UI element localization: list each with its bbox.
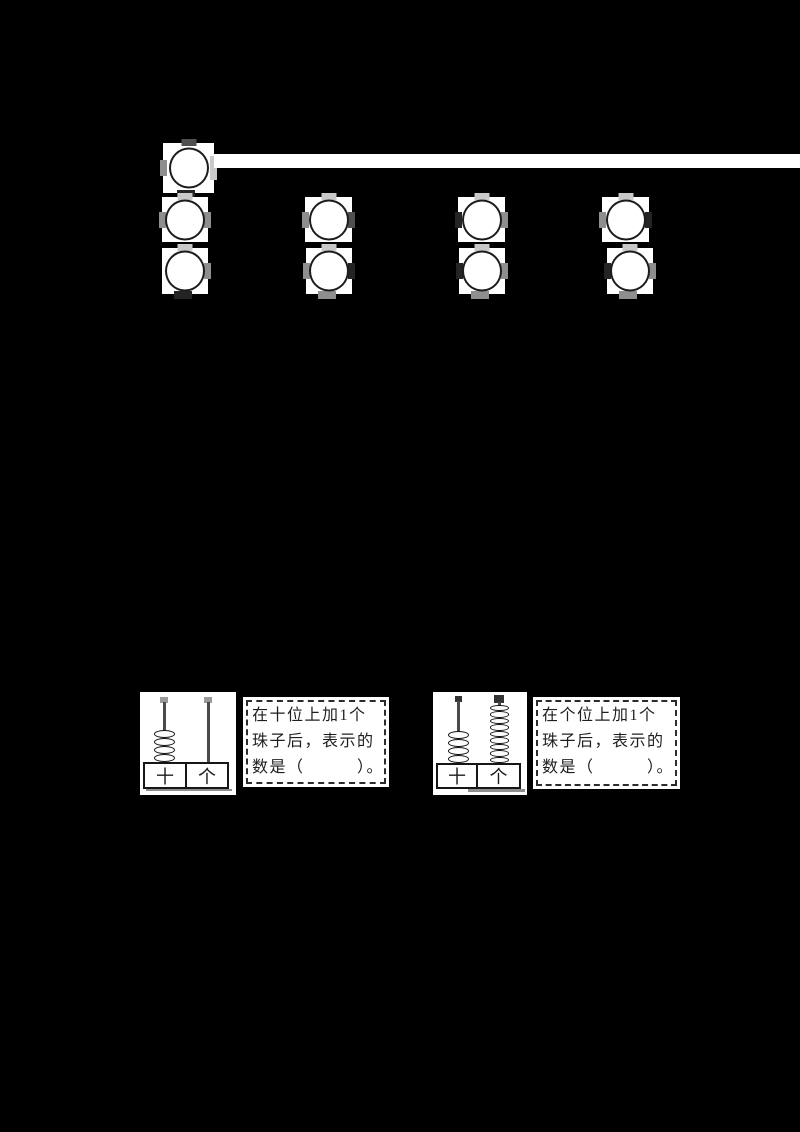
abacus-bead [448, 731, 469, 739]
prompt-line: 珠子后，表示的 [542, 729, 675, 755]
ones-place-label: 个 [476, 763, 521, 789]
abacus-bead [154, 754, 175, 762]
prompt-line: 数是（ ）。 [252, 755, 384, 781]
mask-fragment [471, 291, 489, 299]
empty-circle [169, 148, 209, 189]
circle-item [458, 197, 505, 242]
abacus-bead [490, 724, 509, 731]
ones-place-label: 个 [185, 762, 229, 789]
circle-item [162, 197, 208, 242]
abacus-bead [448, 739, 469, 747]
prompt-line: 在十位上加1个 [252, 703, 384, 729]
tens-place-label: 十 [143, 762, 187, 789]
empty-circle [165, 251, 205, 292]
mask-fragment [501, 212, 508, 228]
tens-place-label: 十 [436, 763, 478, 789]
tens-bead-stack [154, 702, 175, 762]
worksheet-page: 十 个 在十位上加1个 珠子后，表示的 数是（ ）。 十 个 在个位上加1个 [0, 0, 800, 1132]
abacus-tens-4-ones-0: 十 个 [140, 692, 236, 795]
mask-fragment [348, 263, 355, 279]
mask-fragment [318, 291, 336, 299]
empty-circle [462, 251, 502, 292]
circle-item [459, 248, 505, 294]
abacus-bead [490, 737, 509, 744]
prompt-line: 珠子后，表示的 [252, 729, 384, 755]
empty-circle [462, 199, 502, 240]
abacus-bead [154, 738, 175, 746]
mask-fragment [160, 160, 167, 176]
mask-fragment [501, 263, 508, 279]
base-shadow [146, 789, 232, 791]
circle-item [305, 197, 352, 242]
mask-fragment [348, 212, 355, 228]
abacus-bead [154, 746, 175, 754]
mask-fragment [204, 263, 211, 279]
dashed-border-box: 在个位上加1个 珠子后，表示的 数是（ ）。 [536, 700, 677, 786]
mask-fragment [649, 263, 656, 279]
empty-circle [606, 199, 646, 240]
mask-fragment [204, 212, 211, 228]
ones-bead-stack [198, 702, 219, 762]
circle-item [162, 248, 208, 294]
prompt-line: 在个位上加1个 [542, 703, 675, 729]
abacus-bead [448, 747, 469, 755]
ones-bead-stack [489, 703, 509, 763]
tens-bead-stack [448, 701, 469, 763]
mask-fragment [174, 291, 192, 299]
circle-item [306, 248, 352, 294]
white-strip [214, 154, 800, 168]
mask-fragment [181, 139, 196, 146]
empty-circle [165, 199, 205, 240]
empty-circle [610, 251, 650, 292]
prompt-line: 数是（ ）。 [542, 755, 675, 781]
dashed-border-box: 在十位上加1个 珠子后，表示的 数是（ ）。 [246, 700, 386, 784]
circle-item [163, 143, 214, 193]
prompt-box: 在十位上加1个 珠子后，表示的 数是（ ）。 [243, 697, 389, 787]
circle-item [607, 248, 653, 294]
abacus-tens-4-ones-9: 十 个 [433, 692, 527, 795]
abacus-bead [490, 711, 509, 718]
abacus-bead [448, 755, 469, 763]
empty-circle [309, 199, 349, 240]
base-shadow [468, 789, 525, 792]
mask-fragment [619, 291, 637, 299]
abacus-bead [490, 750, 509, 757]
empty-circle [309, 251, 349, 292]
abacus-bead [154, 730, 175, 738]
prompt-box: 在个位上加1个 珠子后，表示的 数是（ ）。 [533, 697, 680, 789]
mask-fragment [645, 212, 652, 228]
circle-item [602, 197, 649, 242]
